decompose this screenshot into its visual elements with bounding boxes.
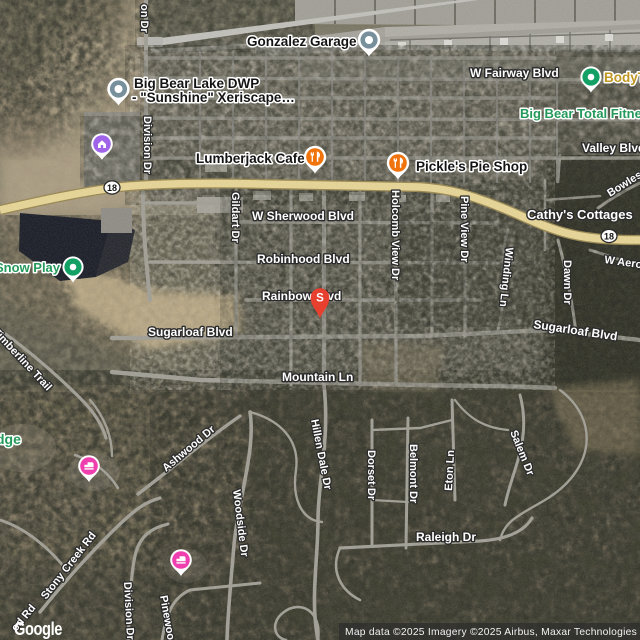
svg-text:Map data ©2025 Imagery ©2025 A: Map data ©2025 Imagery ©2025 Airbus, Max… xyxy=(345,627,637,638)
svg-text:Eton Ln: Eton Ln xyxy=(443,449,457,491)
svg-text:Gildart Dr: Gildart Dr xyxy=(229,192,241,243)
svg-text:Raleigh Dr: Raleigh Dr xyxy=(416,530,476,544)
svg-text:on Dr: on Dr xyxy=(138,4,150,33)
svg-text:18: 18 xyxy=(107,183,117,193)
svg-text:Dawn Dr: Dawn Dr xyxy=(561,260,573,305)
svg-text:Gonzalez Garage: Gonzalez Garage xyxy=(247,34,357,49)
svg-text:Rainbow Blvd: Rainbow Blvd xyxy=(262,289,341,303)
svg-text:W Fairway Blvd: W Fairway Blvd xyxy=(470,66,559,80)
svg-text:18: 18 xyxy=(604,232,614,242)
svg-text:BodyT…: BodyT… xyxy=(604,70,640,85)
svg-text:Dorset Dr: Dorset Dr xyxy=(365,450,377,501)
svg-text:Robinhood Blvd: Robinhood Blvd xyxy=(257,252,350,266)
svg-text:Pickle's Pie Shop: Pickle's Pie Shop xyxy=(416,159,527,174)
svg-text:Sugarloaf Blvd: Sugarloaf Blvd xyxy=(148,325,233,339)
svg-text:Division Dr: Division Dr xyxy=(141,116,153,175)
svg-text:Big Bear Lake DWP: Big Bear Lake DWP xyxy=(134,76,259,91)
svg-text:S: S xyxy=(316,293,324,305)
svg-text:Pine View Dr: Pine View Dr xyxy=(458,196,470,263)
svg-text:Cathy's Cottages: Cathy's Cottages xyxy=(527,207,633,222)
svg-text:Google: Google xyxy=(14,619,62,639)
svg-text:Valley Blvd: Valley Blvd xyxy=(582,141,640,155)
svg-text:Snow Play: Snow Play xyxy=(0,260,61,275)
svg-text:dge: dge xyxy=(0,431,21,447)
svg-text:- "Sunshine" Xeriscape…: - "Sunshine" Xeriscape… xyxy=(132,90,295,105)
svg-text:Holcomb View Dr: Holcomb View Dr xyxy=(389,190,401,281)
svg-text:W Sherwood Blvd: W Sherwood Blvd xyxy=(252,209,354,223)
svg-text:Big Bear Total Fitne…: Big Bear Total Fitne… xyxy=(520,106,640,121)
svg-text:Mountain Ln: Mountain Ln xyxy=(282,370,353,384)
svg-text:Lumberjack Cafe: Lumberjack Cafe xyxy=(196,151,305,166)
svg-text:Belmont Dr: Belmont Dr xyxy=(407,444,419,504)
